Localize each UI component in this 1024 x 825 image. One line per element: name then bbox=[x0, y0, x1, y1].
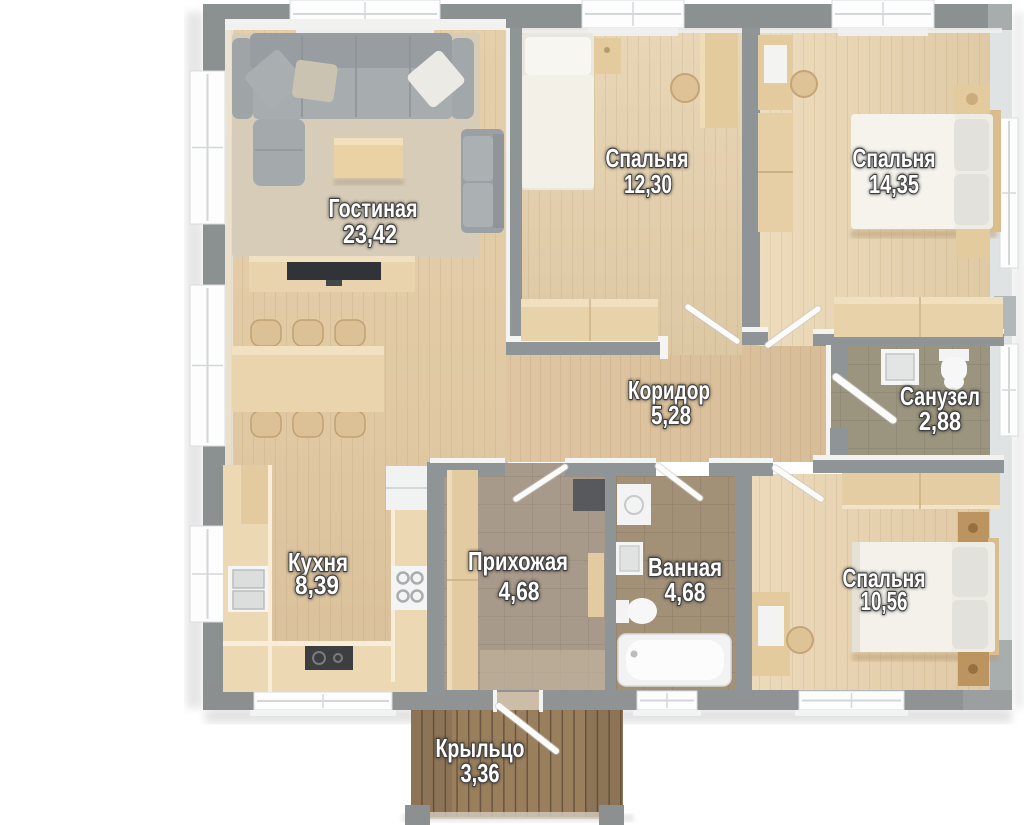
svg-text:12,30: 12,30 bbox=[624, 169, 672, 199]
svg-text:Прихожая: Прихожая bbox=[468, 546, 568, 576]
svg-text:8,39: 8,39 bbox=[295, 570, 339, 600]
svg-text:4,68: 4,68 bbox=[499, 576, 540, 606]
svg-text:2,88: 2,88 bbox=[919, 406, 961, 436]
svg-text:10,56: 10,56 bbox=[861, 586, 908, 616]
svg-text:5,28: 5,28 bbox=[651, 400, 691, 430]
svg-text:4,68: 4,68 bbox=[665, 577, 706, 607]
svg-text:3,36: 3,36 bbox=[461, 758, 500, 788]
svg-text:23,42: 23,42 bbox=[343, 219, 397, 249]
svg-text:14,35: 14,35 bbox=[869, 169, 919, 199]
